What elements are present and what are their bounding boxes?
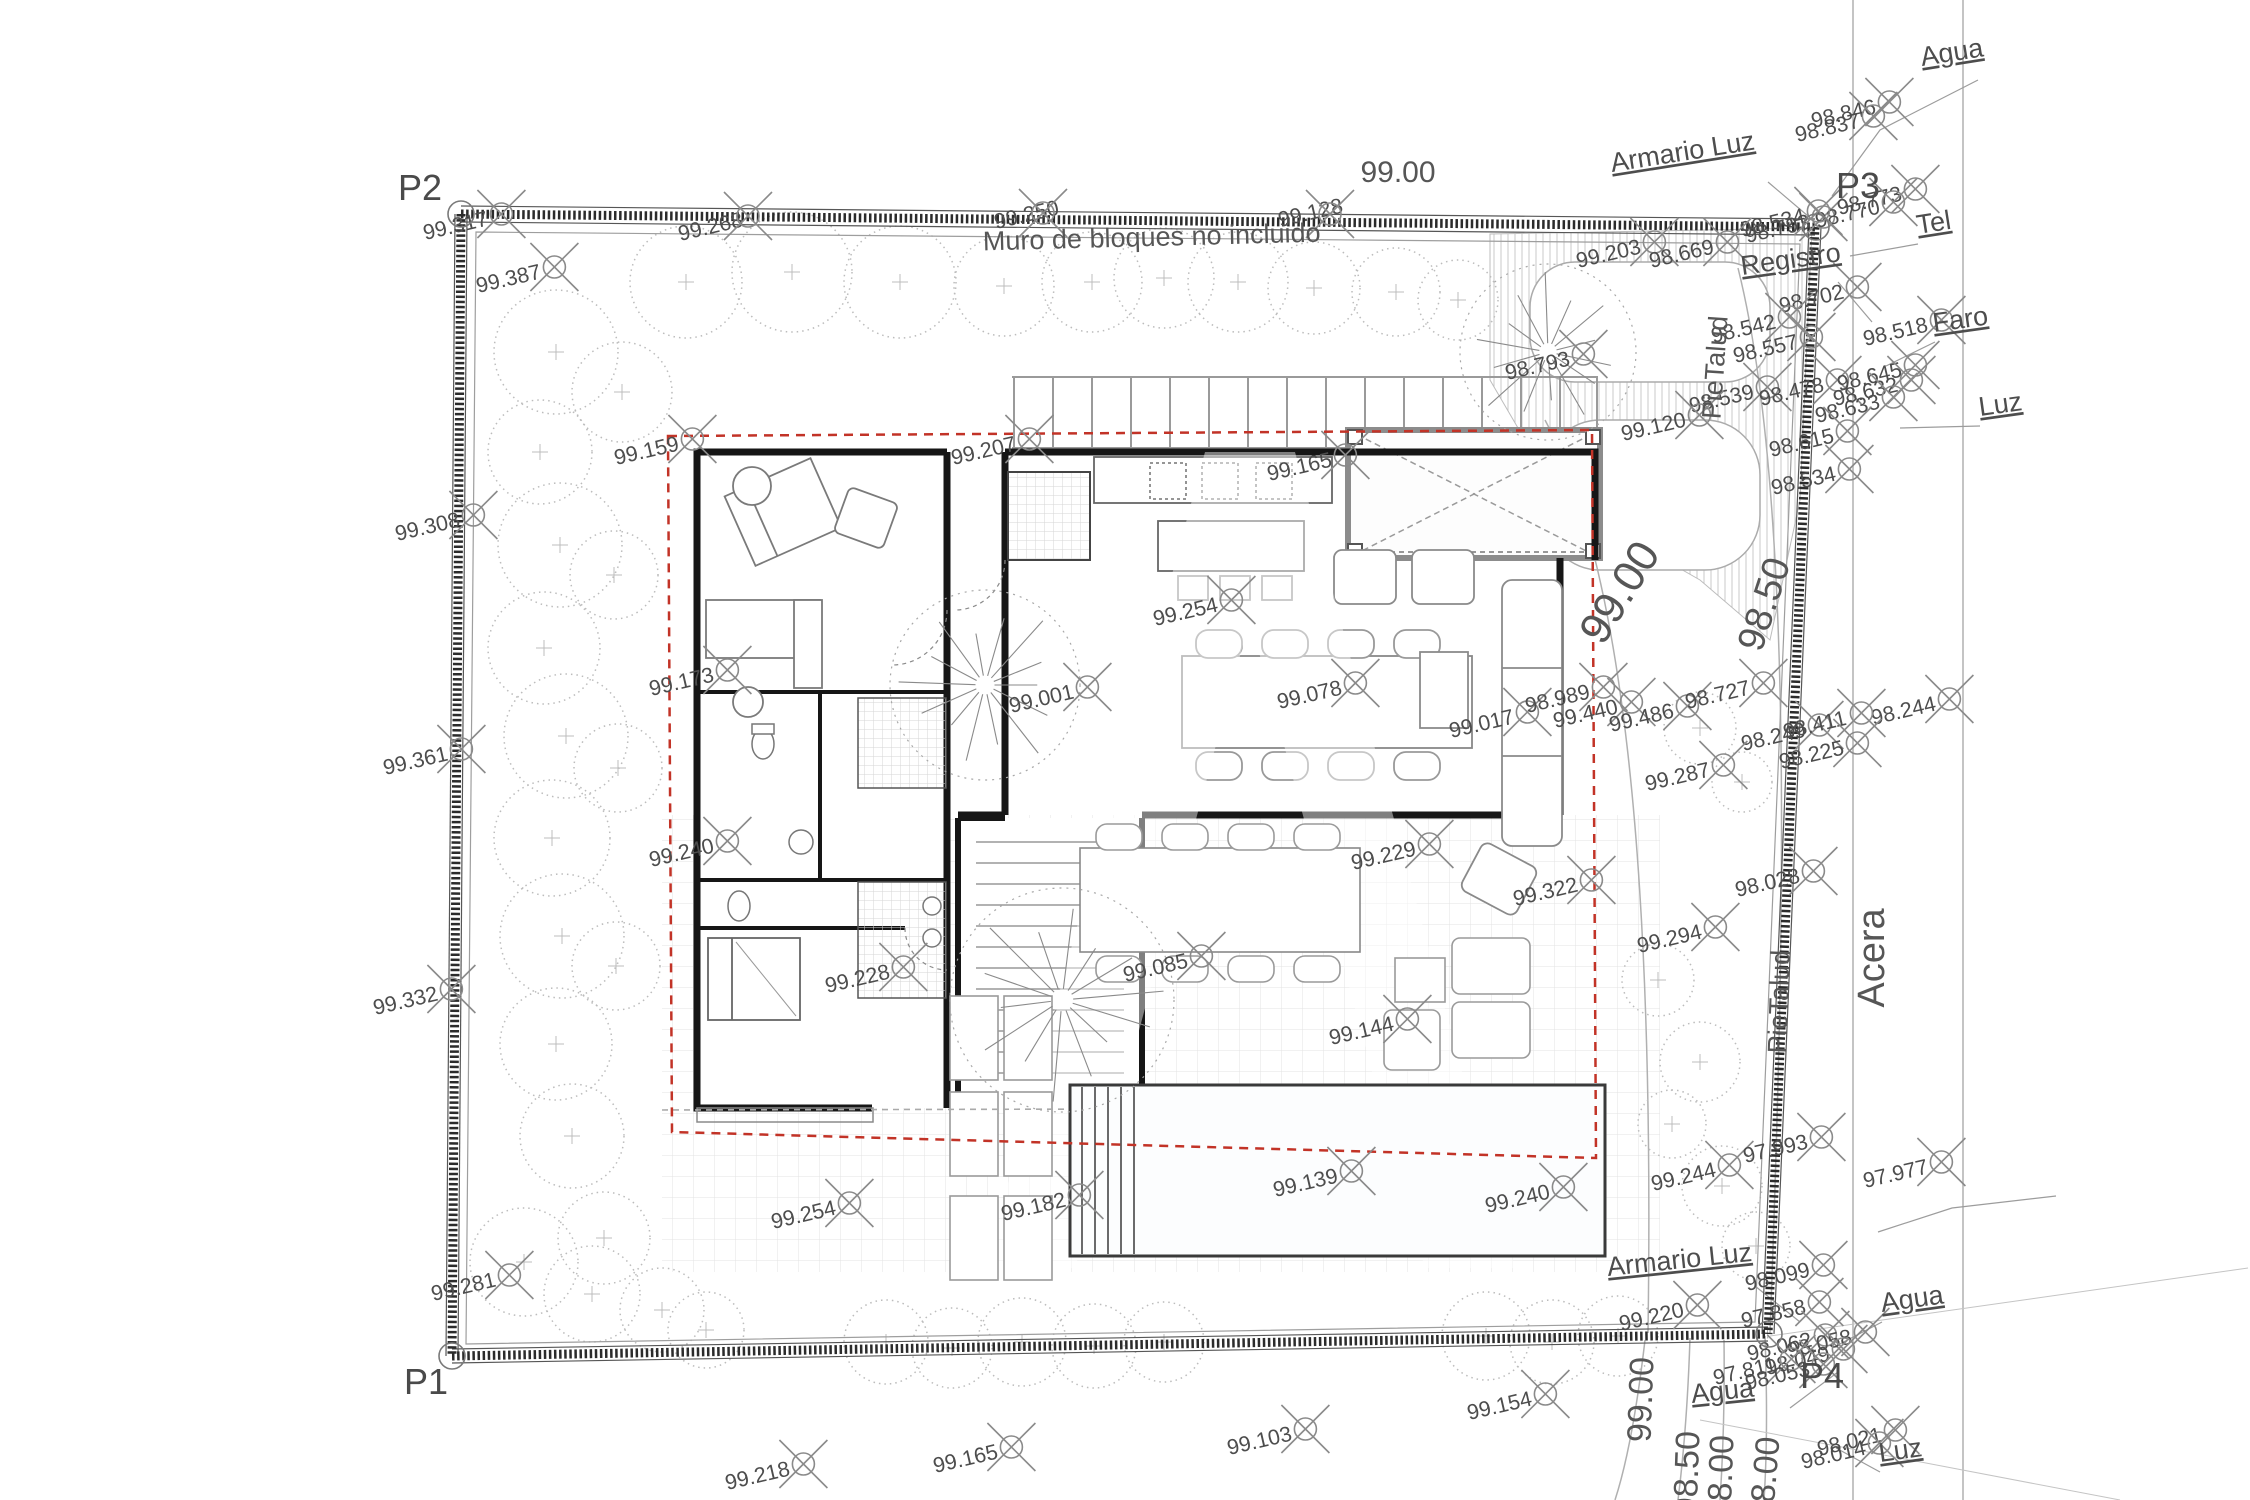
survey-point: 99.103	[1225, 1405, 1330, 1460]
pool	[1070, 1085, 1605, 1256]
tree-icon	[572, 342, 672, 442]
elevation-value: 99.165	[931, 1440, 1001, 1478]
utility-label: Agua	[1918, 32, 1986, 72]
tree-icon	[1268, 242, 1360, 334]
elevation-value: 99.332	[371, 982, 440, 1020]
level-label: 98.00	[1701, 1434, 1742, 1500]
tree-icon	[620, 1268, 704, 1352]
tree-icon	[1712, 752, 1772, 812]
survey-point: 99.218	[723, 1440, 828, 1495]
survey-point: 99.281	[429, 1251, 534, 1306]
tree-icon	[500, 988, 612, 1100]
survey-point: 98.727	[1683, 659, 1788, 714]
level-label: 98.00	[1742, 1435, 1787, 1500]
tree-icon	[488, 400, 592, 504]
elevation-value: 99.287	[1643, 758, 1712, 796]
tree-icon	[494, 780, 610, 896]
elevation-value: 99.154	[1465, 1387, 1535, 1425]
tree-icon	[544, 1246, 640, 1342]
level-label: 99.00	[1360, 156, 1435, 189]
survey-point: 99.165	[931, 1423, 1036, 1478]
utility-label: Luz	[1877, 1432, 1924, 1468]
elevation-value: 98.028	[1733, 864, 1803, 902]
elevation-value: 99.281	[429, 1268, 498, 1306]
tree-icon	[470, 1208, 578, 1316]
pantry	[1008, 472, 1090, 560]
tree-icon	[572, 922, 660, 1010]
tree-icon	[494, 290, 618, 414]
tree-icon	[488, 592, 600, 704]
site-plan-sheet: 99.31799.38799.26899.25099.12898.84698.8…	[0, 0, 2250, 1500]
elevation-value: 99.308	[393, 508, 463, 546]
survey-point: 99.332	[371, 965, 476, 1020]
elevation-value: 98.244	[1869, 692, 1939, 730]
utility-label: Armario Luz	[1608, 126, 1756, 178]
survey-point: 99.154	[1465, 1370, 1570, 1425]
tree-icon	[570, 531, 658, 619]
survey-point: 97.977	[1861, 1138, 1966, 1193]
corner-label: P1	[404, 1361, 448, 1402]
level-label: Acera	[1851, 908, 1893, 1008]
tree-icon	[520, 1084, 624, 1188]
tree-icon	[978, 1298, 1066, 1386]
elevation-value: 99.218	[723, 1457, 793, 1495]
elevation-value: 99.159	[612, 432, 681, 470]
tree-icon	[668, 1292, 744, 1368]
tree-icon	[1352, 248, 1440, 336]
utility-label: Luz	[1977, 386, 2024, 422]
survey-point: 99.361	[381, 725, 486, 780]
tree-icon	[1418, 260, 1498, 340]
elevation-value: 99.220	[1617, 1298, 1687, 1336]
bedroom2-furniture	[708, 938, 800, 1020]
tree-icon	[498, 483, 622, 607]
utility-label: Tel	[1914, 205, 1953, 240]
tree-icon	[504, 674, 628, 798]
corner-label: P4	[1800, 1355, 1844, 1396]
elevation-value: 97.977	[1861, 1155, 1930, 1193]
tree-icon	[574, 724, 662, 812]
survey-point: 99.308	[393, 491, 498, 546]
tree-icon	[844, 226, 956, 338]
tree-icon	[1442, 1292, 1530, 1380]
elevation-value: 99.361	[381, 742, 450, 780]
corner-label: P2	[398, 167, 442, 208]
tree-icon	[732, 212, 852, 332]
survey-point: 97.993	[1741, 1113, 1846, 1168]
elevation-value: 99.387	[474, 260, 543, 298]
tree-icon	[500, 874, 624, 998]
survey-point: 98.244	[1869, 675, 1974, 730]
corner-label: P3	[1836, 165, 1880, 206]
elevation-value: 98.727	[1683, 676, 1752, 714]
utility-label: Faro	[1931, 301, 1990, 338]
site-plan-drawing: 99.31799.38799.26899.25099.12898.84698.8…	[0, 0, 2250, 1500]
survey-point: 99.287	[1643, 741, 1748, 796]
elevation-value: 99.103	[1225, 1422, 1295, 1460]
level-label: PieTalud	[1762, 949, 1796, 1054]
level-label: 99.00	[1621, 1356, 1662, 1442]
utility-label: Agua	[1689, 1372, 1756, 1409]
